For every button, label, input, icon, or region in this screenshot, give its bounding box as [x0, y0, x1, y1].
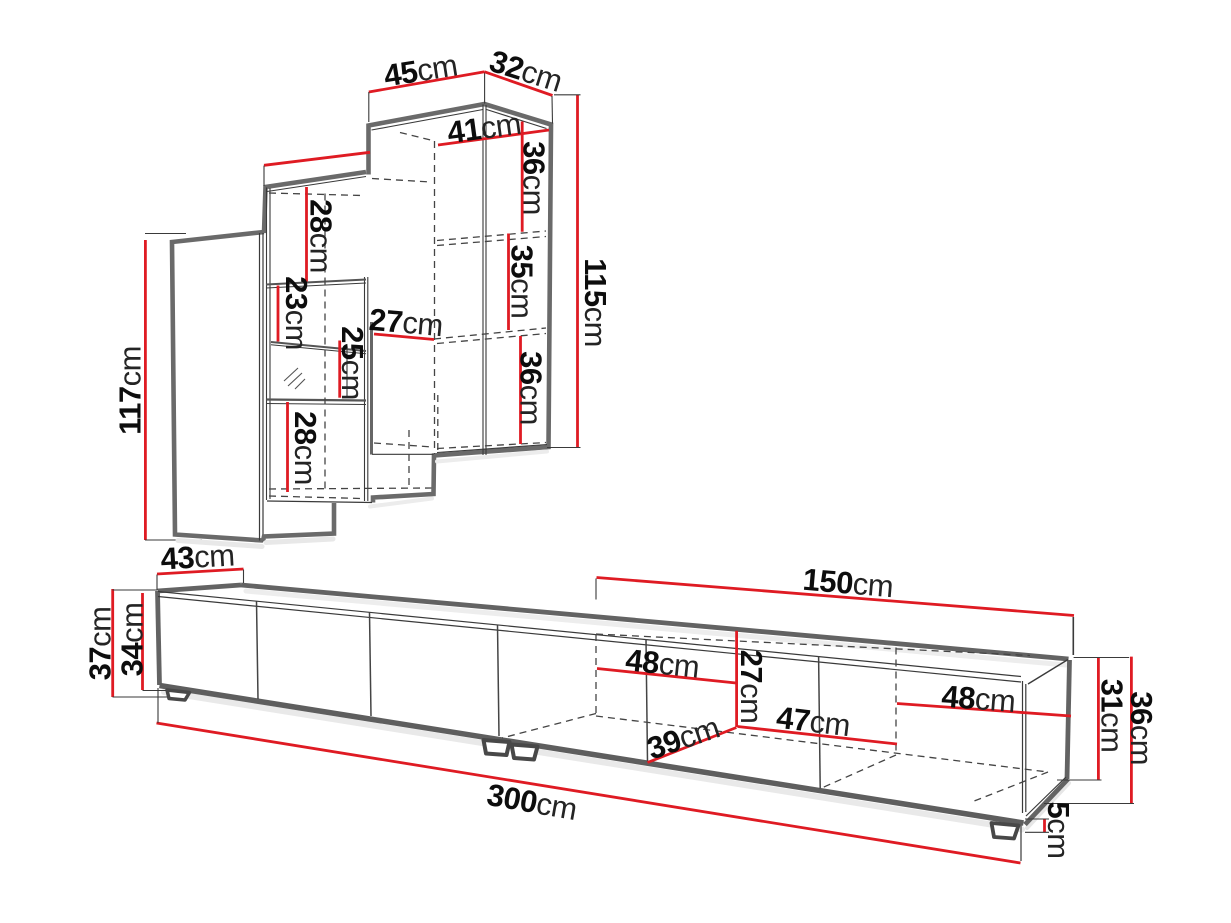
svg-text:43cm: 43cm: [160, 537, 236, 576]
svg-text:23cm: 23cm: [280, 276, 315, 350]
svg-text:35cm: 35cm: [505, 245, 540, 319]
svg-text:36cm: 36cm: [514, 351, 549, 425]
svg-text:27cm: 27cm: [368, 301, 445, 342]
svg-text:27cm: 27cm: [734, 650, 769, 724]
svg-text:117cm: 117cm: [112, 346, 147, 435]
svg-text:36cm: 36cm: [517, 141, 552, 215]
svg-text:25cm: 25cm: [336, 326, 371, 400]
svg-text:48cm: 48cm: [940, 678, 1016, 718]
svg-text:28cm: 28cm: [304, 199, 339, 273]
svg-text:28cm: 28cm: [289, 411, 324, 485]
svg-text:34cm: 34cm: [114, 603, 149, 677]
svg-text:5cm: 5cm: [1042, 801, 1077, 858]
svg-text:37cm: 37cm: [82, 607, 117, 681]
svg-text:115cm: 115cm: [579, 258, 614, 347]
svg-text:36cm: 36cm: [1124, 691, 1159, 765]
